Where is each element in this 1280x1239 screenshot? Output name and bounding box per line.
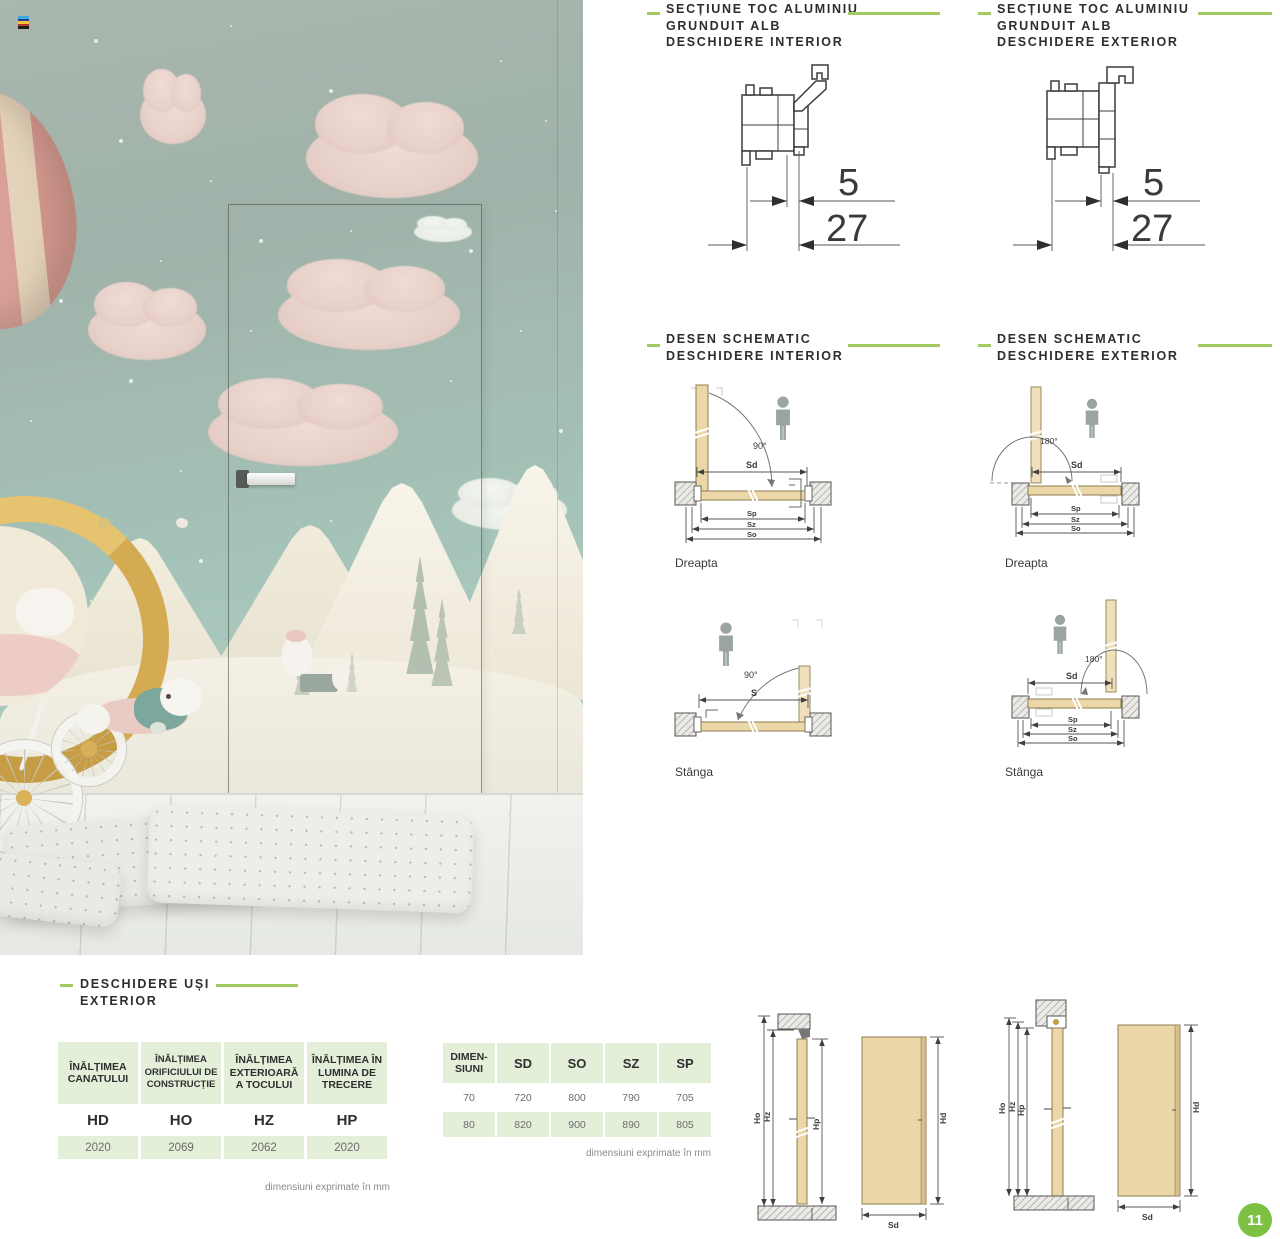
- schematic-exterior-stanga: 180° Sd Sp Sz So Stânga: [988, 596, 1268, 784]
- title-line: DESEN SCHEMATIC: [666, 331, 843, 348]
- title-line: SECȚIUNE TOC ALUMINIU: [666, 1, 859, 18]
- height-table-code: HZ: [224, 1107, 304, 1133]
- width-table-footnote: dimensiuni exprimate în mm: [443, 1148, 711, 1159]
- title-line: DESCHIDERE INTERIOR: [666, 34, 859, 51]
- print-color-bar: [18, 16, 29, 29]
- width-table-header: SP: [659, 1043, 711, 1083]
- width-table-cell: 705: [659, 1085, 711, 1110]
- dim-hp: Hp: [1016, 1105, 1026, 1116]
- bassinet-plush: [16, 588, 74, 636]
- height-table-value: 2020: [307, 1136, 387, 1159]
- dim-sd: Sd: [888, 1220, 899, 1230]
- angle-label: 90°: [744, 670, 758, 680]
- diagram-label: Dreapta: [675, 556, 718, 570]
- section-title-opening: DESCHIDERE UȘI EXTERIOR: [80, 976, 210, 1009]
- header-underline: [216, 984, 298, 987]
- dim-hd: Hd: [938, 1113, 948, 1124]
- width-table-cell: 800: [551, 1085, 603, 1110]
- dim-sd: Sd: [1071, 460, 1083, 470]
- photo-cloud: [306, 118, 478, 198]
- diagram-label: Stânga: [675, 765, 713, 779]
- title-line: GRUNDUIT ALB: [997, 18, 1190, 35]
- wall-corner-line: [557, 0, 558, 793]
- angle-label: 180°: [1040, 436, 1058, 446]
- room-photo: [0, 0, 583, 955]
- header-underline: [1198, 12, 1272, 15]
- section-title-profile-interior: SECȚIUNE TOC ALUMINIU GRUNDUIT ALB DESCH…: [666, 1, 859, 51]
- page-number-badge: 11: [1238, 1203, 1272, 1237]
- floor-pillow: [146, 804, 474, 913]
- height-table-header: ÎNĂLȚIMEA ORIFICIULUI DE CONSTRUCȚIE: [141, 1042, 221, 1104]
- header-underline: [848, 12, 940, 15]
- plush-puppy: [76, 704, 110, 734]
- angle-label: 180°: [1085, 654, 1103, 664]
- dim-27: 27: [826, 208, 868, 250]
- dim-sp: Sp: [747, 509, 757, 518]
- height-table-code: HD: [58, 1107, 138, 1133]
- dim-ho: Ho: [997, 1103, 1007, 1114]
- profile-drawing-interior: 5 27: [690, 55, 990, 265]
- photo-stars: [0, 0, 2, 2]
- height-table: ÎNĂLȚIMEA CANATULUI ÎNĂLȚIMEA ORIFICIULU…: [58, 1042, 387, 1159]
- dim-sz: Sz: [747, 520, 756, 529]
- schematic-exterior-dreapta: 180° Sd Sp Sz So Dreapta: [988, 383, 1268, 573]
- width-table-header: SO: [551, 1043, 603, 1083]
- catalog-page: SECȚIUNE TOC ALUMINIU GRUNDUIT ALB DESCH…: [0, 0, 1280, 1239]
- header-dash: [978, 344, 991, 347]
- diagram-label: Stânga: [1005, 765, 1043, 779]
- dim-s: S: [751, 688, 757, 698]
- schematic-interior-dreapta: 90° Sd Sp Sz So Dreapta: [658, 383, 938, 573]
- diagram-label: Dreapta: [1005, 556, 1048, 570]
- dim-27: 27: [1131, 208, 1173, 250]
- dim-5: 5: [1143, 162, 1164, 204]
- title-line: SECȚIUNE TOC ALUMINIU: [997, 1, 1190, 18]
- height-table-value: 2069: [141, 1136, 221, 1159]
- dim-sz: Sz: [1068, 725, 1077, 734]
- width-table-cell: 790: [605, 1085, 657, 1110]
- hot-air-balloon: [0, 82, 87, 339]
- width-table-cell: 890: [605, 1112, 657, 1137]
- photo-cloud: [140, 86, 206, 144]
- door-handle[interactable]: [247, 473, 295, 485]
- dim-so: So: [1068, 734, 1078, 743]
- width-table-cell: 805: [659, 1112, 711, 1137]
- width-table: DIMEN- SIUNI SD SO SZ SP 70 720 800 790 …: [443, 1043, 711, 1137]
- height-table-header: ÎNĂLȚIMEA ÎN LUMINA DE TRECERE: [307, 1042, 387, 1104]
- angle-label: 90°: [753, 441, 767, 451]
- dim-hp: Hp: [811, 1119, 821, 1130]
- header-dash: [647, 344, 660, 347]
- title-line: EXTERIOR: [80, 993, 210, 1010]
- width-table-cell: 80: [443, 1112, 495, 1137]
- title-line: DESEN SCHEMATIC: [997, 331, 1179, 348]
- dim-ho: Ho: [752, 1113, 762, 1124]
- dim-so: So: [747, 530, 757, 539]
- dim-sp: Sp: [1071, 504, 1081, 513]
- header-underline: [848, 344, 940, 347]
- floor-pillow: [0, 851, 123, 928]
- plush-dog-eye: [166, 694, 171, 699]
- height-table-code: HO: [141, 1107, 221, 1133]
- width-table-cell: 900: [551, 1112, 603, 1137]
- flush-door[interactable]: [228, 204, 482, 890]
- dim-sd: Sd: [1142, 1212, 1153, 1222]
- title-line: DESCHIDERE EXTERIOR: [997, 348, 1179, 365]
- dim-sd: Sd: [746, 460, 758, 470]
- dim-hd: Hd: [1191, 1102, 1201, 1113]
- section-title-schematic-exterior: DESEN SCHEMATIC DESCHIDERE EXTERIOR: [997, 331, 1179, 364]
- dim-sp: Sp: [1068, 715, 1078, 724]
- page-number: 11: [1247, 1212, 1263, 1229]
- height-table-footnote: dimensiuni exprimate în mm: [58, 1182, 400, 1193]
- title-line: GRUNDUIT ALB: [666, 18, 859, 35]
- section-title-schematic-interior: DESEN SCHEMATIC DESCHIDERE INTERIOR: [666, 331, 843, 364]
- height-table-header: ÎNĂLȚIMEA EXTERIOARĂ A TOCULUI: [224, 1042, 304, 1104]
- profile-drawing-exterior: 5 27: [995, 55, 1280, 265]
- butterfly: [175, 517, 189, 529]
- section-title-profile-exterior: SECȚIUNE TOC ALUMINIU GRUNDUIT ALB DESCH…: [997, 1, 1190, 51]
- dim-hz: Hz: [762, 1112, 772, 1122]
- elevation-drawing-1: Ho Hz Hp Hd Sd: [742, 982, 957, 1237]
- width-table-cell: 720: [497, 1085, 549, 1110]
- header-dash: [978, 12, 991, 15]
- width-table-cell: 820: [497, 1112, 549, 1137]
- elevation-drawing-2: Ho Hz Hp Hd Sd: [990, 978, 1225, 1238]
- header-underline: [1198, 344, 1272, 347]
- height-table-header: ÎNĂLȚIMEA CANATULUI: [58, 1042, 138, 1104]
- width-table-header: SZ: [605, 1043, 657, 1083]
- dim-so: So: [1071, 524, 1081, 533]
- header-dash: [60, 984, 73, 987]
- small-toy: [150, 722, 166, 734]
- title-line: DESCHIDERE UȘI: [80, 976, 210, 993]
- width-table-cell: 70: [443, 1085, 495, 1110]
- title-line: DESCHIDERE INTERIOR: [666, 348, 843, 365]
- width-table-header: SD: [497, 1043, 549, 1083]
- height-table-value: 2062: [224, 1136, 304, 1159]
- dim-5: 5: [838, 162, 859, 204]
- height-table-code: HP: [307, 1107, 387, 1133]
- dim-sd: Sd: [1066, 671, 1078, 681]
- title-line: DESCHIDERE EXTERIOR: [997, 34, 1190, 51]
- photo-cloud: [88, 300, 206, 360]
- header-dash: [647, 12, 660, 15]
- dim-sz: Sz: [1071, 515, 1080, 524]
- height-table-value: 2020: [58, 1136, 138, 1159]
- width-table-header: DIMEN- SIUNI: [443, 1043, 495, 1083]
- schematic-interior-stanga: 90° S Stânga: [658, 596, 938, 784]
